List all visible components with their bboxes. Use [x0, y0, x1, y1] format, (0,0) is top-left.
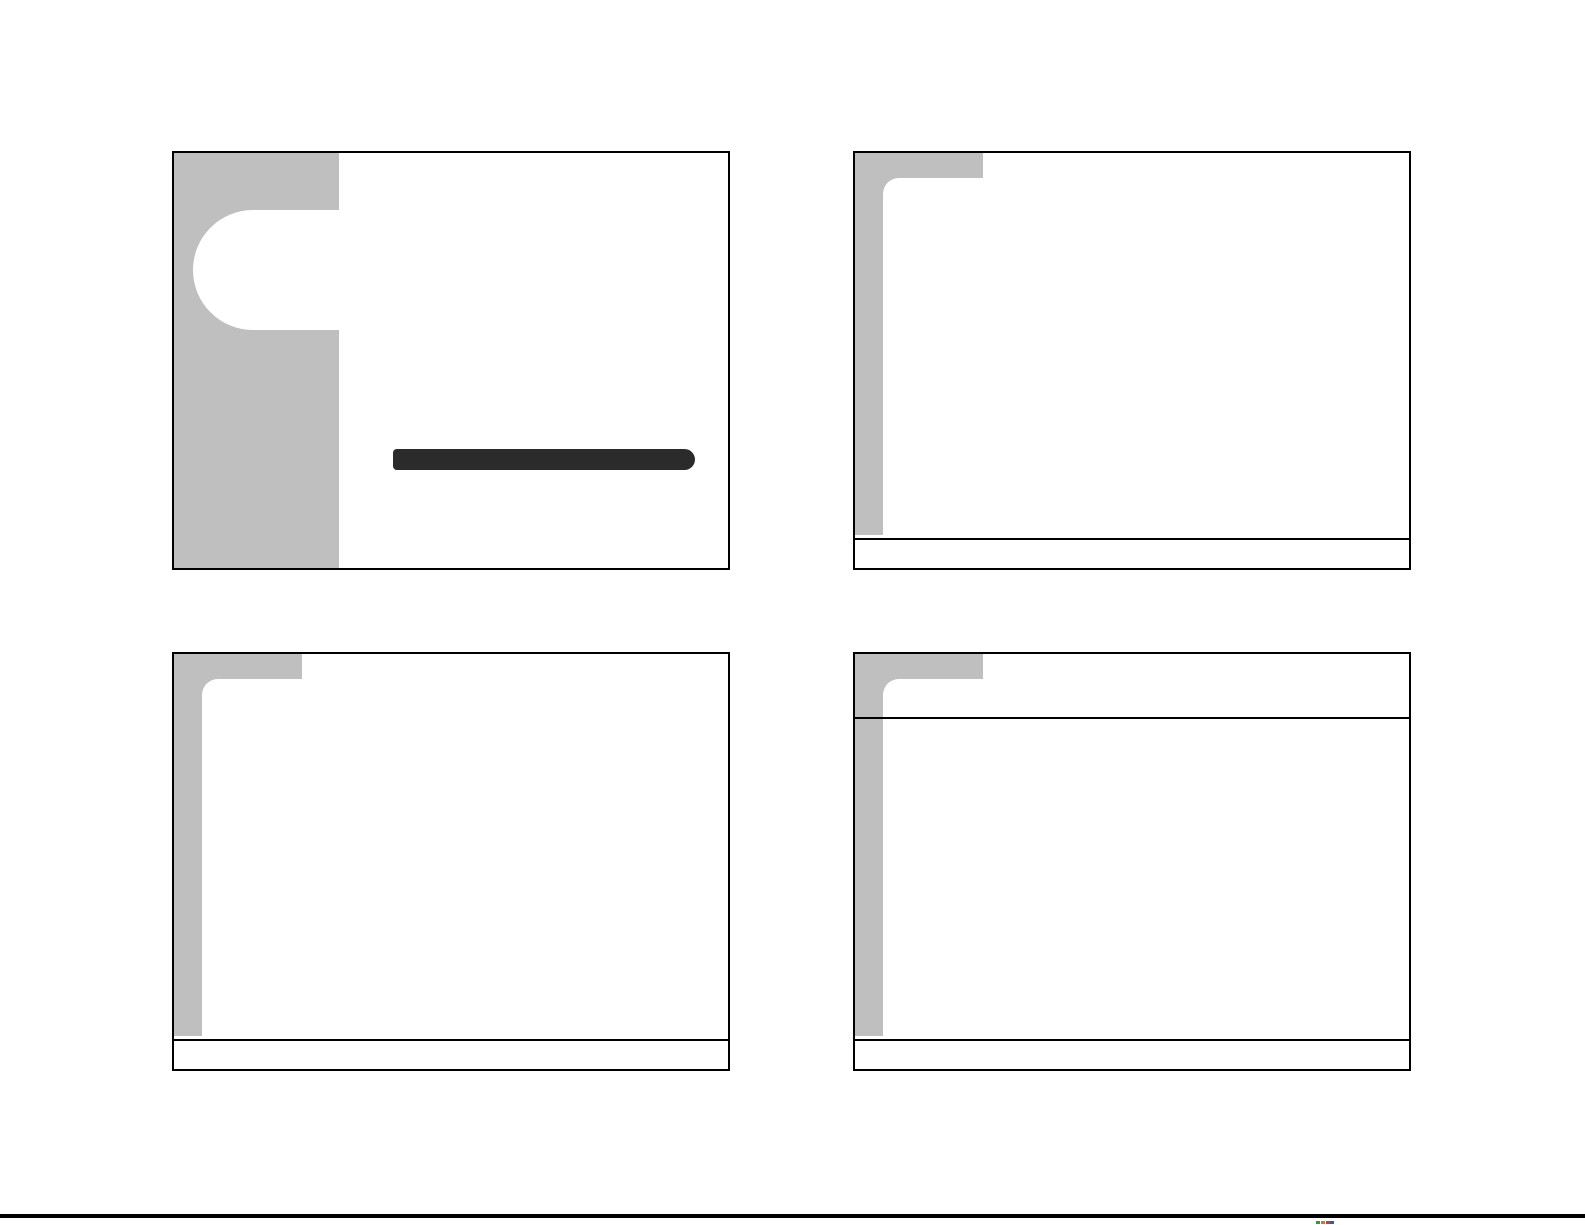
top-accent-bar — [174, 654, 302, 679]
accent-inner-corner-round — [883, 679, 915, 711]
footer-micro-mark-1 — [1316, 1221, 1320, 1224]
slide-thumbnail-2 — [853, 151, 1411, 570]
footer-divider-line — [855, 1039, 1409, 1041]
top-accent-bar — [855, 153, 983, 178]
accent-inner-corner-round — [202, 679, 234, 711]
slide-thumbnail-3 — [172, 652, 730, 1071]
slide-thumbnail-4 — [853, 652, 1411, 1071]
header-divider-line — [855, 717, 1409, 719]
accent-inner-corner-round — [883, 178, 915, 210]
page-bottom-bar — [0, 1214, 1585, 1218]
footer-micro-mark-2 — [1321, 1221, 1325, 1224]
left-accent-strip — [174, 654, 202, 1036]
left-accent-strip — [855, 654, 883, 1036]
footer-divider-line — [174, 1039, 728, 1041]
footer-divider-line — [855, 538, 1409, 540]
left-accent-strip — [855, 153, 883, 535]
footer-micro-mark-4 — [1330, 1221, 1334, 1224]
accent-band-notch-cutout — [193, 210, 363, 330]
handout-page — [0, 0, 1585, 1225]
top-accent-bar — [855, 654, 983, 679]
title-rule-bar — [393, 449, 695, 470]
slide-thumbnail-1 — [172, 151, 730, 570]
